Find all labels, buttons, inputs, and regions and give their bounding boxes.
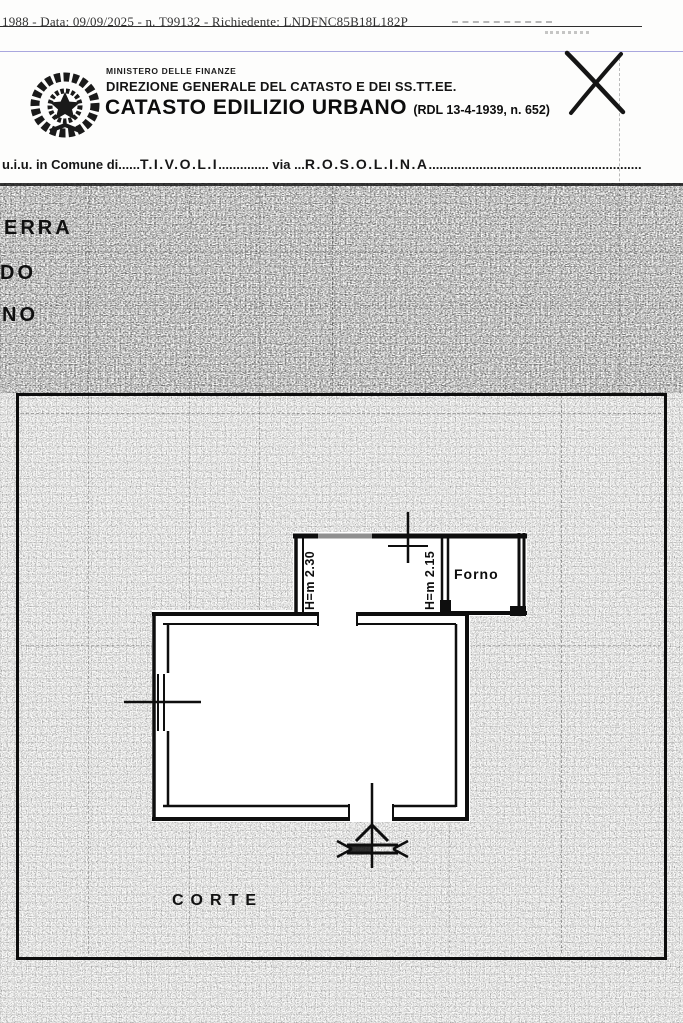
scanned-cadastral-document: 1988 - Data: 09/09/2025 - n. T99132 - Ri… — [0, 0, 683, 1023]
room-height-label-215: H=m 2.15 — [423, 551, 437, 610]
room-height-label-230: H=m 2.30 — [303, 551, 317, 610]
forno-room-label: Forno — [454, 566, 499, 582]
floor-plan-drawing — [0, 0, 683, 1023]
corte-label: CORTE — [172, 892, 263, 910]
main-room-interior — [152, 610, 470, 822]
